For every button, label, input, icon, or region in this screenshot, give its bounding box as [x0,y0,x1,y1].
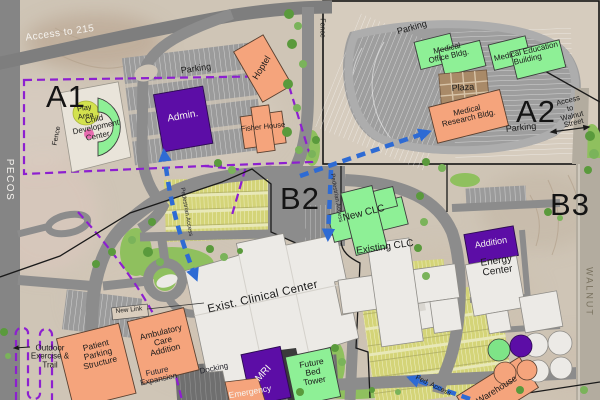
map-graphics [0,0,600,400]
play-feature [84,129,94,139]
building-admin [154,86,213,152]
building-b3-aux [519,291,563,333]
site-plan-map: A1 A2 B2 B3 Access to 215 PECOS WALNUT A… [0,0,600,400]
building-future-bed-tower [285,348,340,400]
play-area-shape [73,101,99,125]
